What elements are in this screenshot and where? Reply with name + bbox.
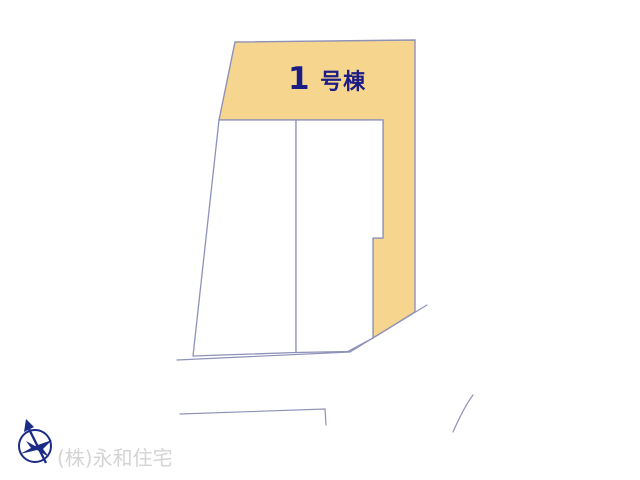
site-plan-diagram: 1 号棟 (株)永和住宅 (0, 0, 640, 480)
lower-road-line (180, 409, 326, 425)
lot-right (296, 120, 383, 353)
building-1-suffix: 号棟 (320, 69, 366, 95)
lot-left (193, 120, 296, 356)
company-watermark: (株)永和住宅 (57, 446, 173, 470)
compass-north-icon (19, 419, 52, 463)
site-plan-page: 1 号棟 (株)永和住宅 (0, 0, 640, 480)
curb-curve-line (453, 395, 473, 432)
building-1-number: 1 (288, 61, 311, 97)
